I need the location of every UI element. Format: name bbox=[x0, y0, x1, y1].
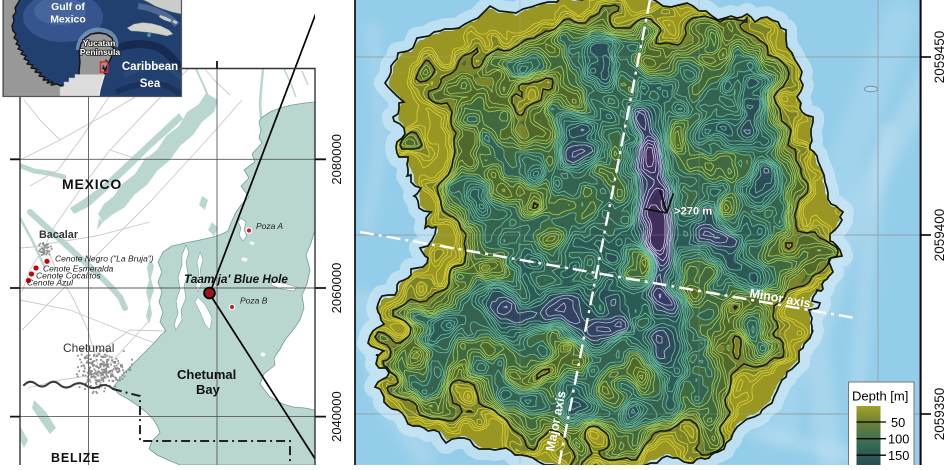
svg-text:Bay: Bay bbox=[196, 382, 221, 397]
svg-text:50: 50 bbox=[891, 415, 905, 430]
svg-text:2059400: 2059400 bbox=[932, 209, 947, 262]
svg-text:Bacalar: Bacalar bbox=[39, 229, 79, 241]
svg-text:Taam ja' Blue Hole: Taam ja' Blue Hole bbox=[184, 272, 288, 286]
svg-text:Depth [m]: Depth [m] bbox=[852, 389, 908, 404]
svg-text:BELIZE: BELIZE bbox=[51, 451, 100, 465]
svg-text:Poza A: Poza A bbox=[256, 221, 283, 231]
svg-text:Caribbean: Caribbean bbox=[122, 61, 178, 73]
svg-text:Gulf of: Gulf of bbox=[51, 1, 85, 13]
svg-text:Peninsula: Peninsula bbox=[80, 47, 120, 57]
svg-text:2040000: 2040000 bbox=[329, 391, 344, 442]
svg-text:2059450: 2059450 bbox=[932, 31, 947, 84]
svg-text:>270 m: >270 m bbox=[674, 206, 712, 218]
svg-text:Chetumal: Chetumal bbox=[63, 341, 114, 355]
svg-text:Sea: Sea bbox=[140, 78, 161, 90]
svg-text:2060000: 2060000 bbox=[329, 263, 344, 314]
svg-text:Mexico: Mexico bbox=[50, 14, 86, 26]
svg-text:Cenote Azul: Cenote Azul bbox=[27, 278, 74, 288]
svg-text:150: 150 bbox=[888, 448, 909, 463]
svg-text:2059350: 2059350 bbox=[932, 388, 947, 441]
svg-text:100: 100 bbox=[888, 432, 909, 447]
svg-text:Cenote Negro ("La Bruja"): Cenote Negro ("La Bruja") bbox=[55, 254, 154, 264]
svg-text:Poza B: Poza B bbox=[240, 296, 268, 306]
svg-text:MEXICO: MEXICO bbox=[62, 176, 122, 192]
svg-text:Chetumal: Chetumal bbox=[177, 367, 236, 382]
svg-text:2080000: 2080000 bbox=[329, 134, 344, 185]
